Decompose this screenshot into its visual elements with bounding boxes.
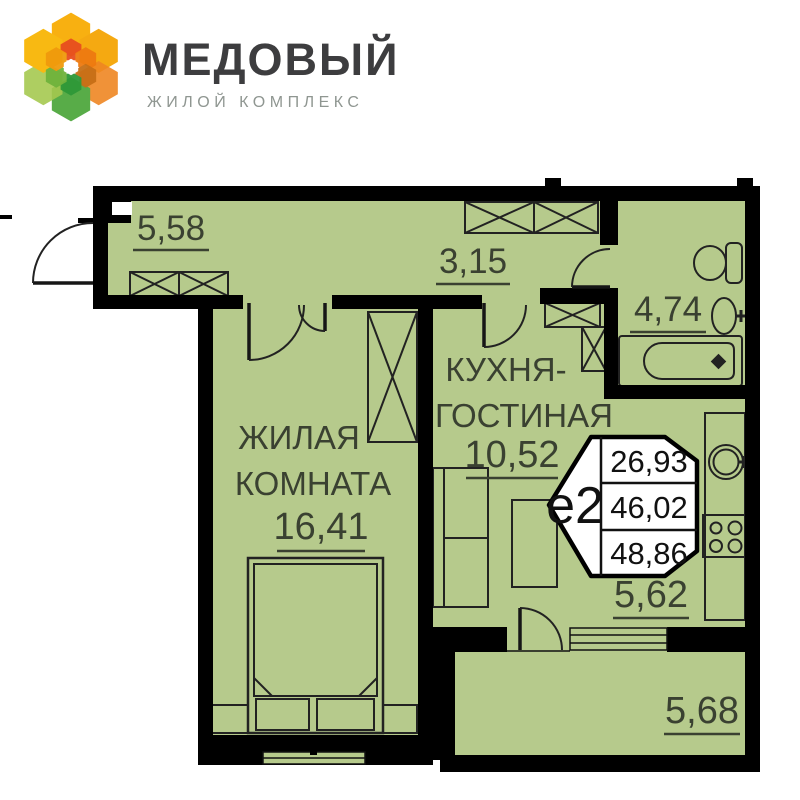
living-room-name: КОМНАТА xyxy=(235,465,391,502)
badge-total-area: 48,86 xyxy=(610,536,688,571)
page: МЕДОВЫЙ ЖИЛОЙ КОМПЛЕКС xyxy=(0,0,800,800)
badge-living-area: 26,93 xyxy=(610,444,688,479)
kitchen-area-label: 10,52 xyxy=(464,434,559,476)
window xyxy=(570,628,667,650)
kitchen-name: ГОСТИНАЯ xyxy=(435,397,613,434)
entrance-door xyxy=(33,223,93,283)
living-room-name: ЖИЛАЯ xyxy=(238,419,360,456)
living-room-area-label: 16,41 xyxy=(273,506,368,548)
window xyxy=(263,751,365,764)
hall-area-label: 5,58 xyxy=(137,209,205,248)
badge-type-label: е2 xyxy=(546,477,604,535)
corridor-area-label: 3,15 xyxy=(439,242,507,281)
kitchen-name: КУХНЯ- xyxy=(445,351,566,388)
badge-main-area: 46,02 xyxy=(610,490,688,525)
bathroom-area-label: 4,74 xyxy=(634,290,702,329)
balcony-area-label: 5,68 xyxy=(665,690,739,732)
kitchen-corridor-area-label: 5,62 xyxy=(614,574,688,616)
floor-plan: 5,58 3,15 4,74 ЖИЛАЯ КОМНАТА 16,41 КУХНЯ… xyxy=(0,0,800,800)
